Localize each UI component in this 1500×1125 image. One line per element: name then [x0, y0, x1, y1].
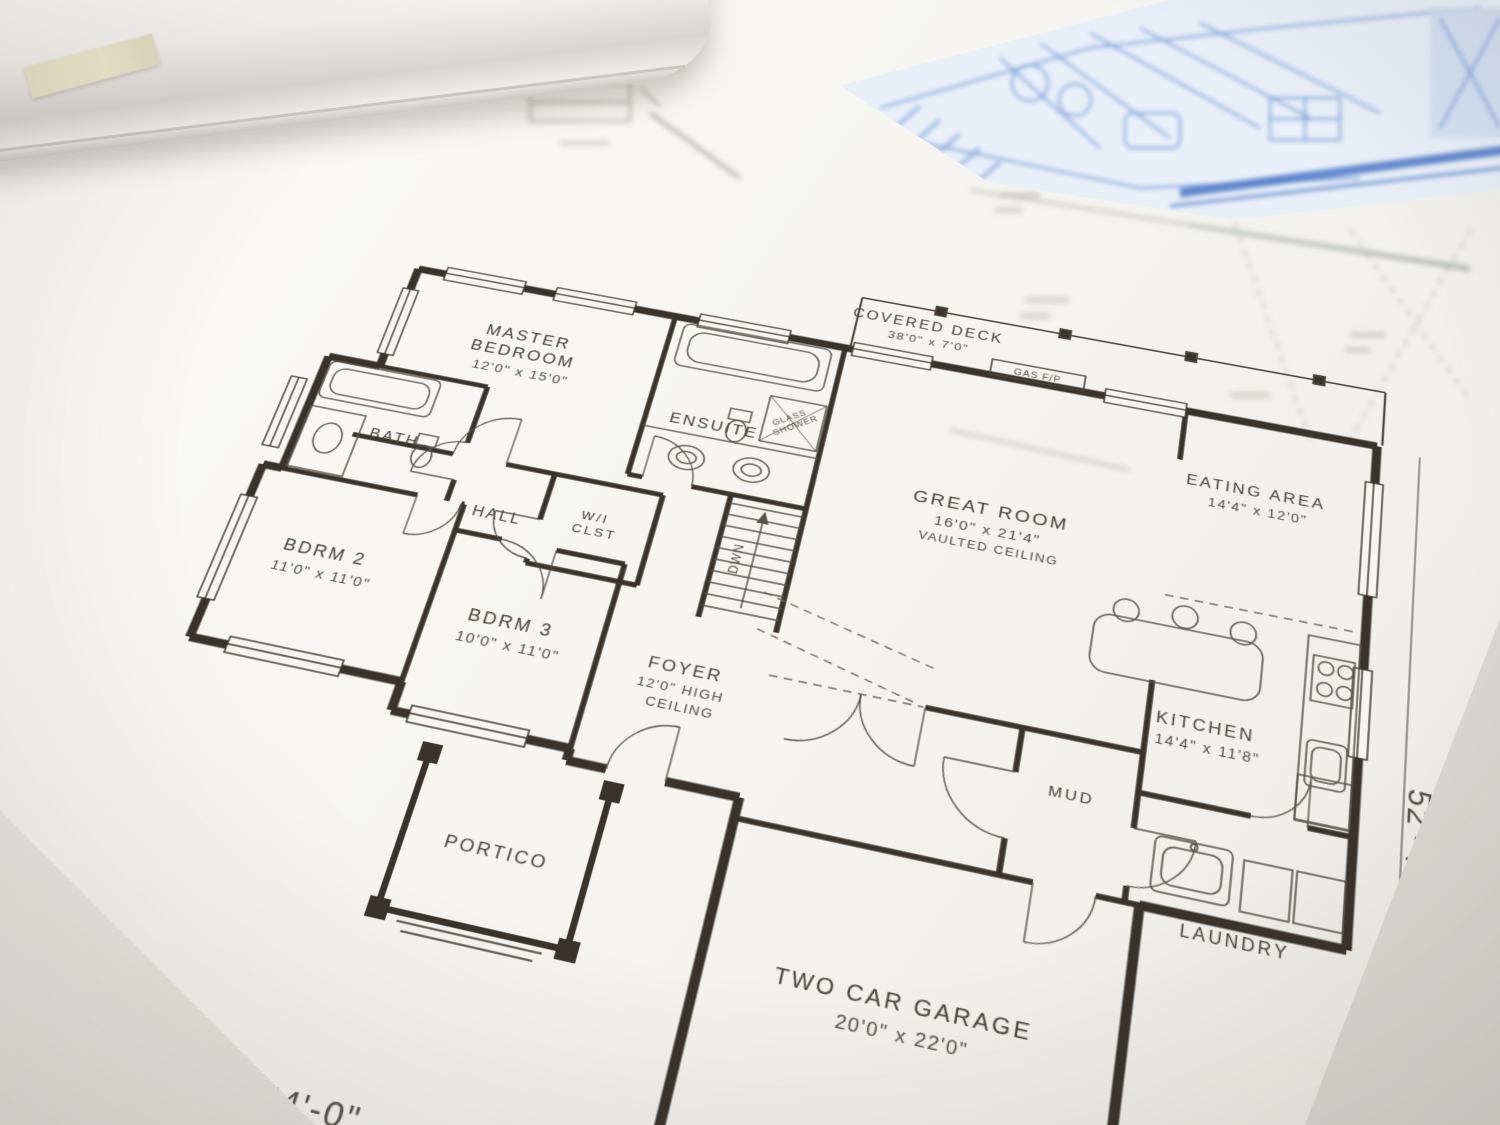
room-label-hall: HALL: [470, 503, 524, 528]
room-label-bdrm3: BDRM 3 10'0" x 11'0": [453, 603, 569, 665]
room-label-mud: MUD: [1047, 783, 1096, 810]
room-label-master-bedroom: MASTER BEDROOM 12'0" x 15'0": [462, 319, 590, 390]
room-label-foyer: FOYER 12'0" HIGH CEILING: [630, 652, 738, 725]
room-label-bath: BATH: [367, 426, 422, 450]
room-label-kitchen: KITCHEN 14'4" x 11'8": [1153, 709, 1264, 768]
room-label-ensuite: ENSUITE: [668, 410, 761, 442]
room-label-wi-clst: W/I CLST: [570, 507, 623, 543]
room-label-bdrm2: BDRM 2 11'0" x 11'0": [268, 534, 381, 593]
stairs: [701, 503, 804, 621]
glass-shower-label: GLASS SHOWER: [767, 406, 820, 437]
room-label-great-room: GREAT ROOM 16'0" x 21'4" VAULTED CEILING: [905, 486, 1079, 571]
stairs-dwn-label: DWN: [725, 542, 748, 575]
room-label-eating-area: EATING AREA 14'4" x 12'0": [1183, 472, 1333, 532]
dimension-depth: 52'-4": [1396, 786, 1438, 886]
dimension-width: 54'-0": [251, 1077, 367, 1125]
photo-of-floor-plans: MASTER BEDROOM 12'0" x 15'0" ENSUITE COV…: [0, 0, 1500, 1125]
room-label-garage: TWO CAR GARAGE 20'0" x 22'0": [765, 964, 1043, 1079]
room-label-portico: PORTICO: [441, 831, 550, 873]
